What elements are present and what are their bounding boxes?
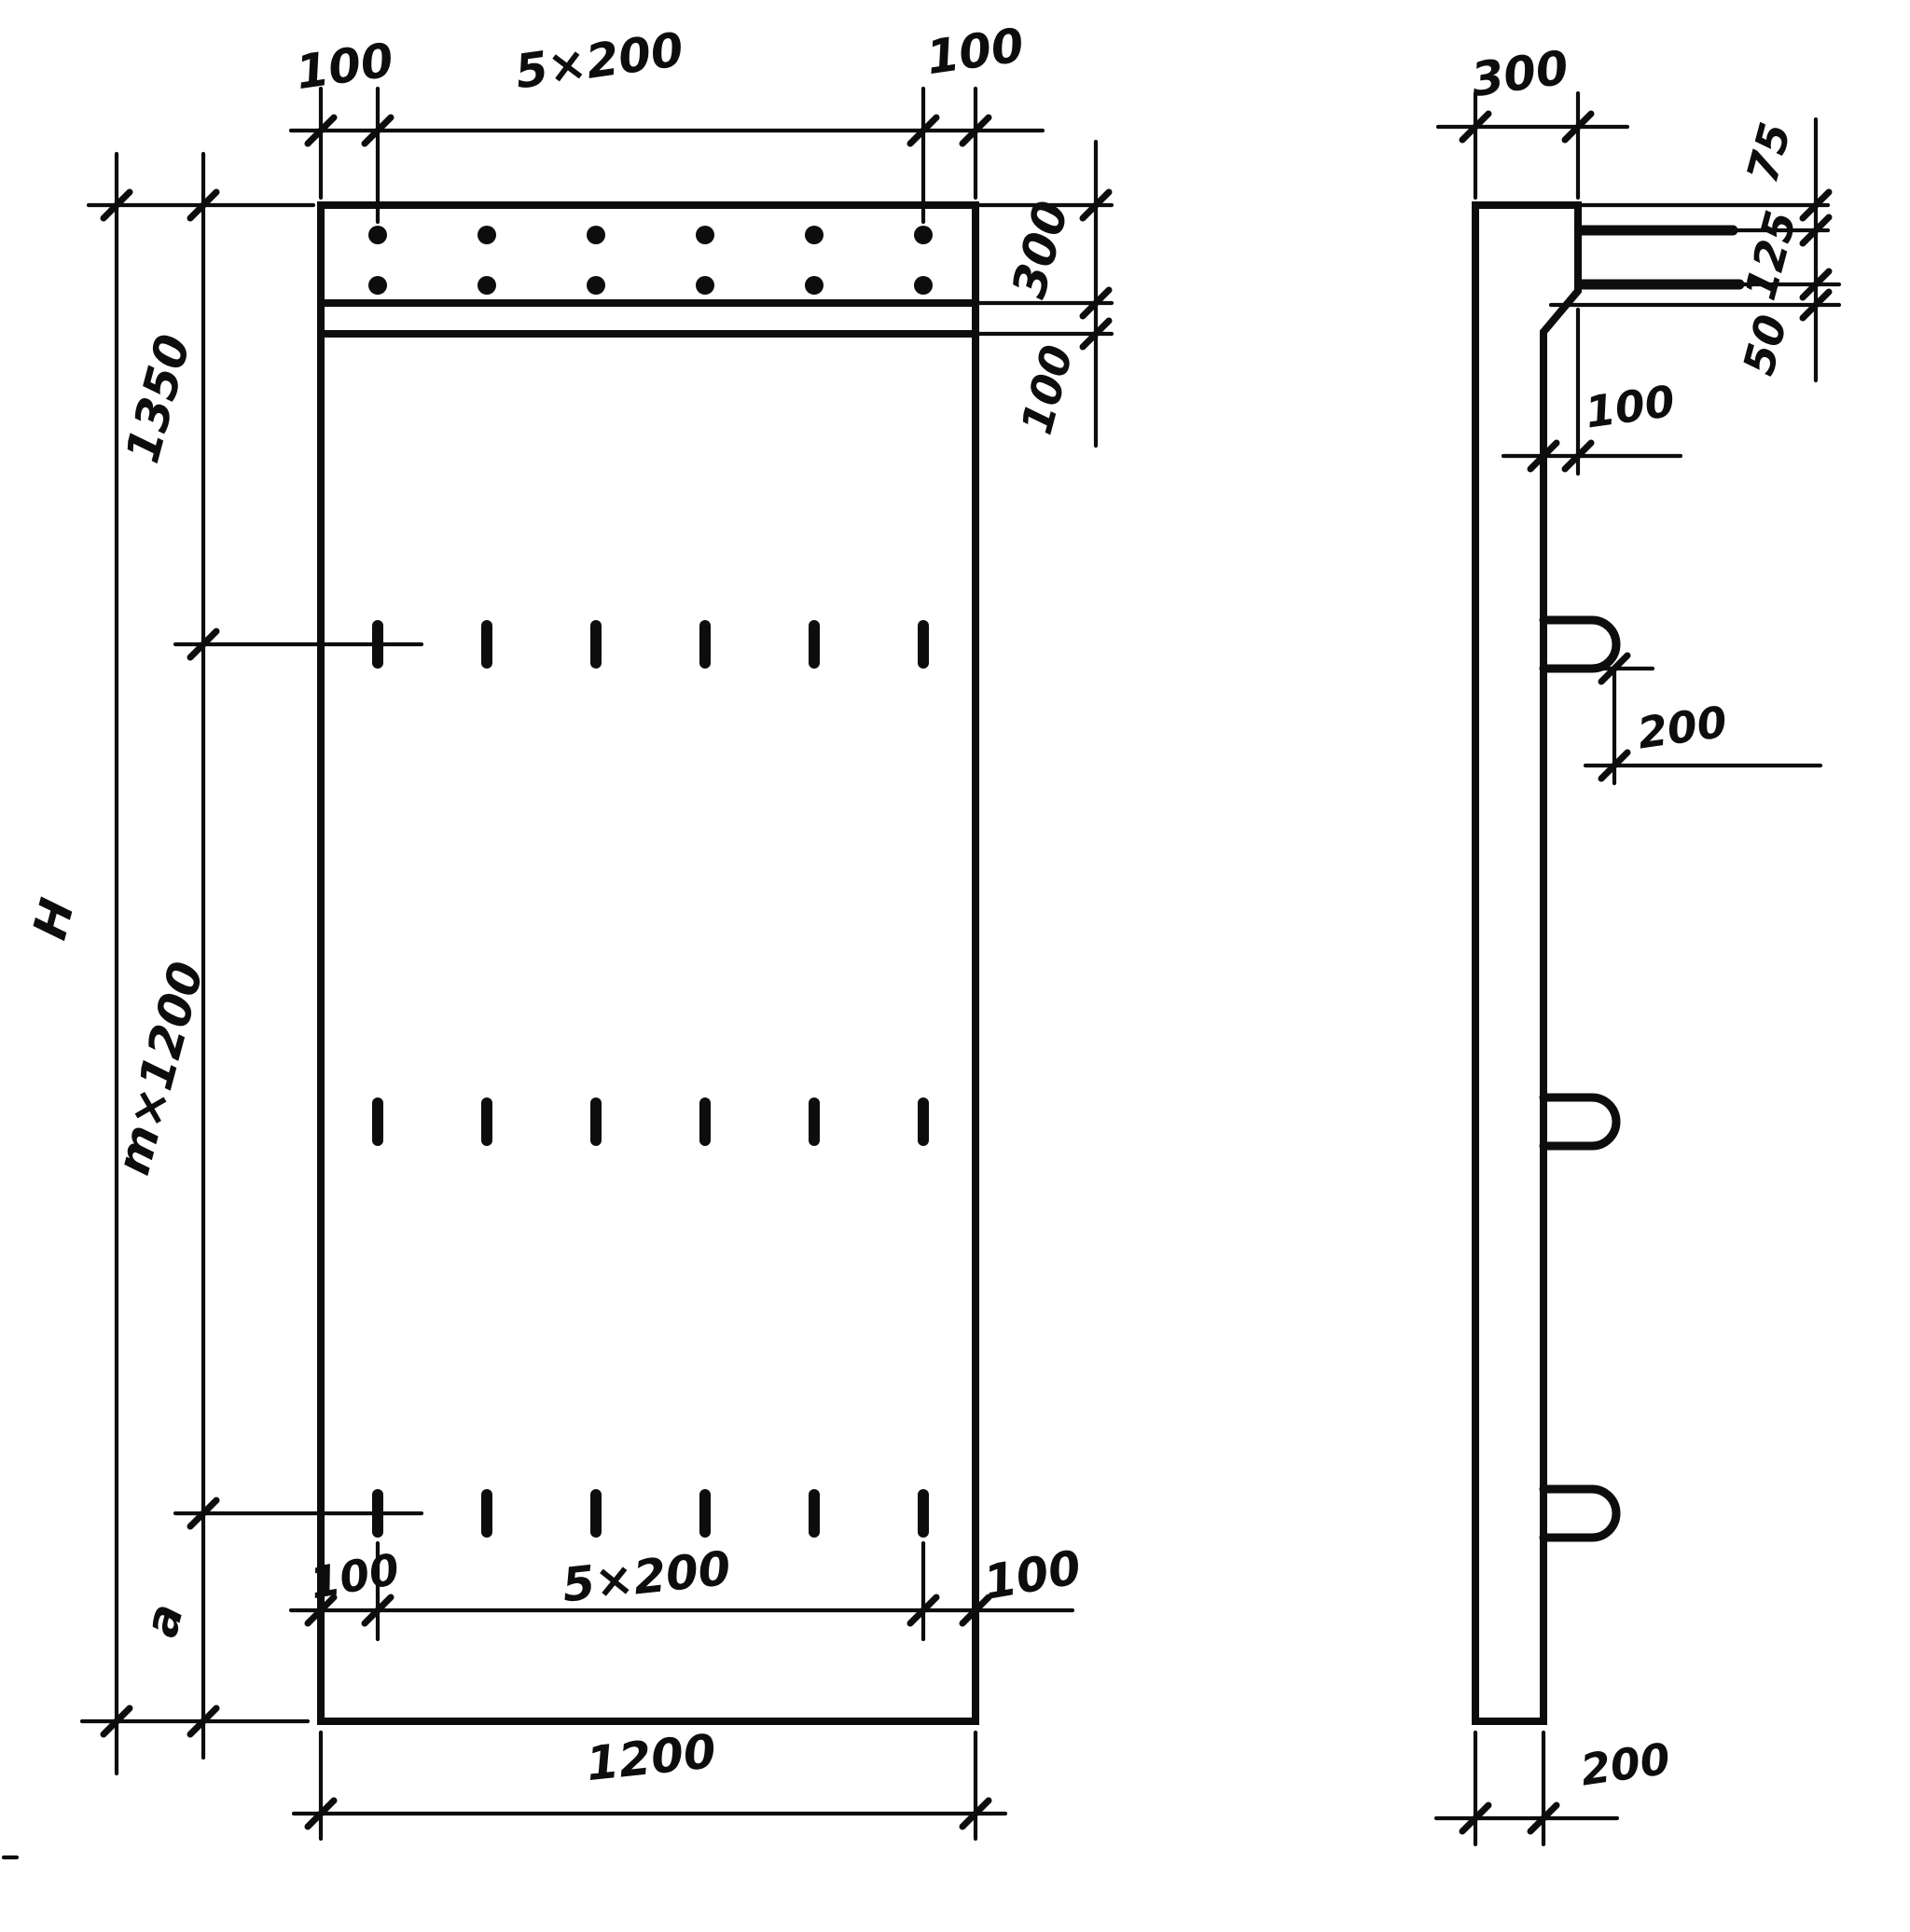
dim-label-gap: 100: [1011, 339, 1083, 439]
dim-label-m-1200: m×1200: [105, 956, 214, 1180]
side-ledge-dimension: 100: [1503, 310, 1681, 474]
slot-mark: [809, 620, 820, 669]
dim-label-50: 50: [1733, 310, 1797, 380]
slot-row-3: [372, 1489, 929, 1538]
anchor-dot: [914, 226, 933, 244]
dim-label-ledge-height: 300: [1002, 196, 1079, 304]
lifting-loops: [1543, 620, 1616, 1538]
anchor-dot: [805, 226, 824, 244]
front-right-dimension: 300 100: [976, 142, 1112, 446]
anchor-dot: [696, 276, 714, 295]
dim-label-bottom-right: 100: [980, 1540, 1086, 1610]
lifting-loop: [1543, 1097, 1616, 1146]
front-bottom-dimension: 100 5×200 100: [291, 1540, 1085, 1639]
anchor-dot: [368, 226, 387, 244]
anchor-dot: [587, 276, 605, 295]
slot-mark: [699, 1489, 711, 1538]
dim-label-side-bottom-width: 200: [1577, 1733, 1673, 1796]
anchor-dot: [696, 226, 714, 244]
front-left-dimension: H 1350 m×1200 a: [22, 154, 422, 1773]
slot-mark: [481, 1097, 492, 1146]
dim-label-side-top-width: 300: [1468, 40, 1571, 107]
slot-row-2: [372, 1097, 929, 1146]
side-right-dimension: 75 125 50: [1733, 117, 1829, 380]
anchor-dot: [477, 276, 496, 295]
dim-label-loop-offset: 200: [1634, 697, 1730, 759]
front-width-dimension: 1200: [294, 1724, 1005, 1839]
side-column-outline: [1475, 205, 1578, 1721]
slot-mark: [809, 1097, 820, 1146]
drawing-sheet: 100 5×200 100 300 100: [0, 0, 1910, 1932]
slot-mark: [809, 1489, 820, 1538]
dim-label-125: 125: [1735, 205, 1806, 305]
anchor-dots: [368, 226, 933, 295]
lifting-loop: [1543, 1489, 1616, 1538]
slot-mark: [590, 620, 602, 669]
panel-outline: [321, 205, 976, 1721]
dim-label-top-right: 100: [923, 18, 1027, 85]
anchor-dot: [477, 226, 496, 244]
side-top-dimension: 300: [1438, 40, 1627, 198]
anchor-dot: [805, 276, 824, 295]
dim-label-top-middle: 5×200: [512, 22, 686, 100]
dim-label-overall-width: 1200: [584, 1724, 718, 1791]
slot-mark: [918, 1489, 929, 1538]
slot-mark: [481, 1489, 492, 1538]
anchor-dot: [587, 226, 605, 244]
slot-row-1: [372, 620, 929, 669]
anchor-dot: [914, 276, 933, 295]
slot-mark: [699, 620, 711, 669]
dim-label-ledge-depth: 100: [1582, 376, 1678, 438]
lifting-loop: [1543, 620, 1616, 669]
slot-mark: [699, 1097, 711, 1146]
panel-technical-drawing: 100 5×200 100 300 100: [0, 0, 1910, 1932]
side-loop-dimension: 200: [1585, 655, 1820, 783]
slot-mark: [918, 620, 929, 669]
front-view: 100 5×200 100 300 100: [22, 18, 1112, 1839]
dim-label-1350: 1350: [116, 329, 201, 468]
side-bottom-dimension: 200: [1436, 1732, 1673, 1844]
slot-mark: [590, 1097, 602, 1146]
slot-mark: [918, 1097, 929, 1146]
dim-label-75: 75: [1737, 117, 1801, 188]
slot-mark: [372, 1097, 383, 1146]
dim-label-a: a: [133, 1598, 194, 1643]
slot-mark: [481, 620, 492, 669]
front-top-dimension: 100 5×200 100: [291, 18, 1043, 222]
dim-label-top-left: 100: [293, 33, 396, 100]
slot-mark: [590, 1489, 602, 1538]
dim-label-overall-height: H: [22, 893, 85, 945]
side-view: 75 125 50 300 100: [1436, 40, 1839, 1844]
dim-label-bottom-middle: 5×200: [560, 1541, 733, 1613]
anchor-dot: [368, 276, 387, 295]
